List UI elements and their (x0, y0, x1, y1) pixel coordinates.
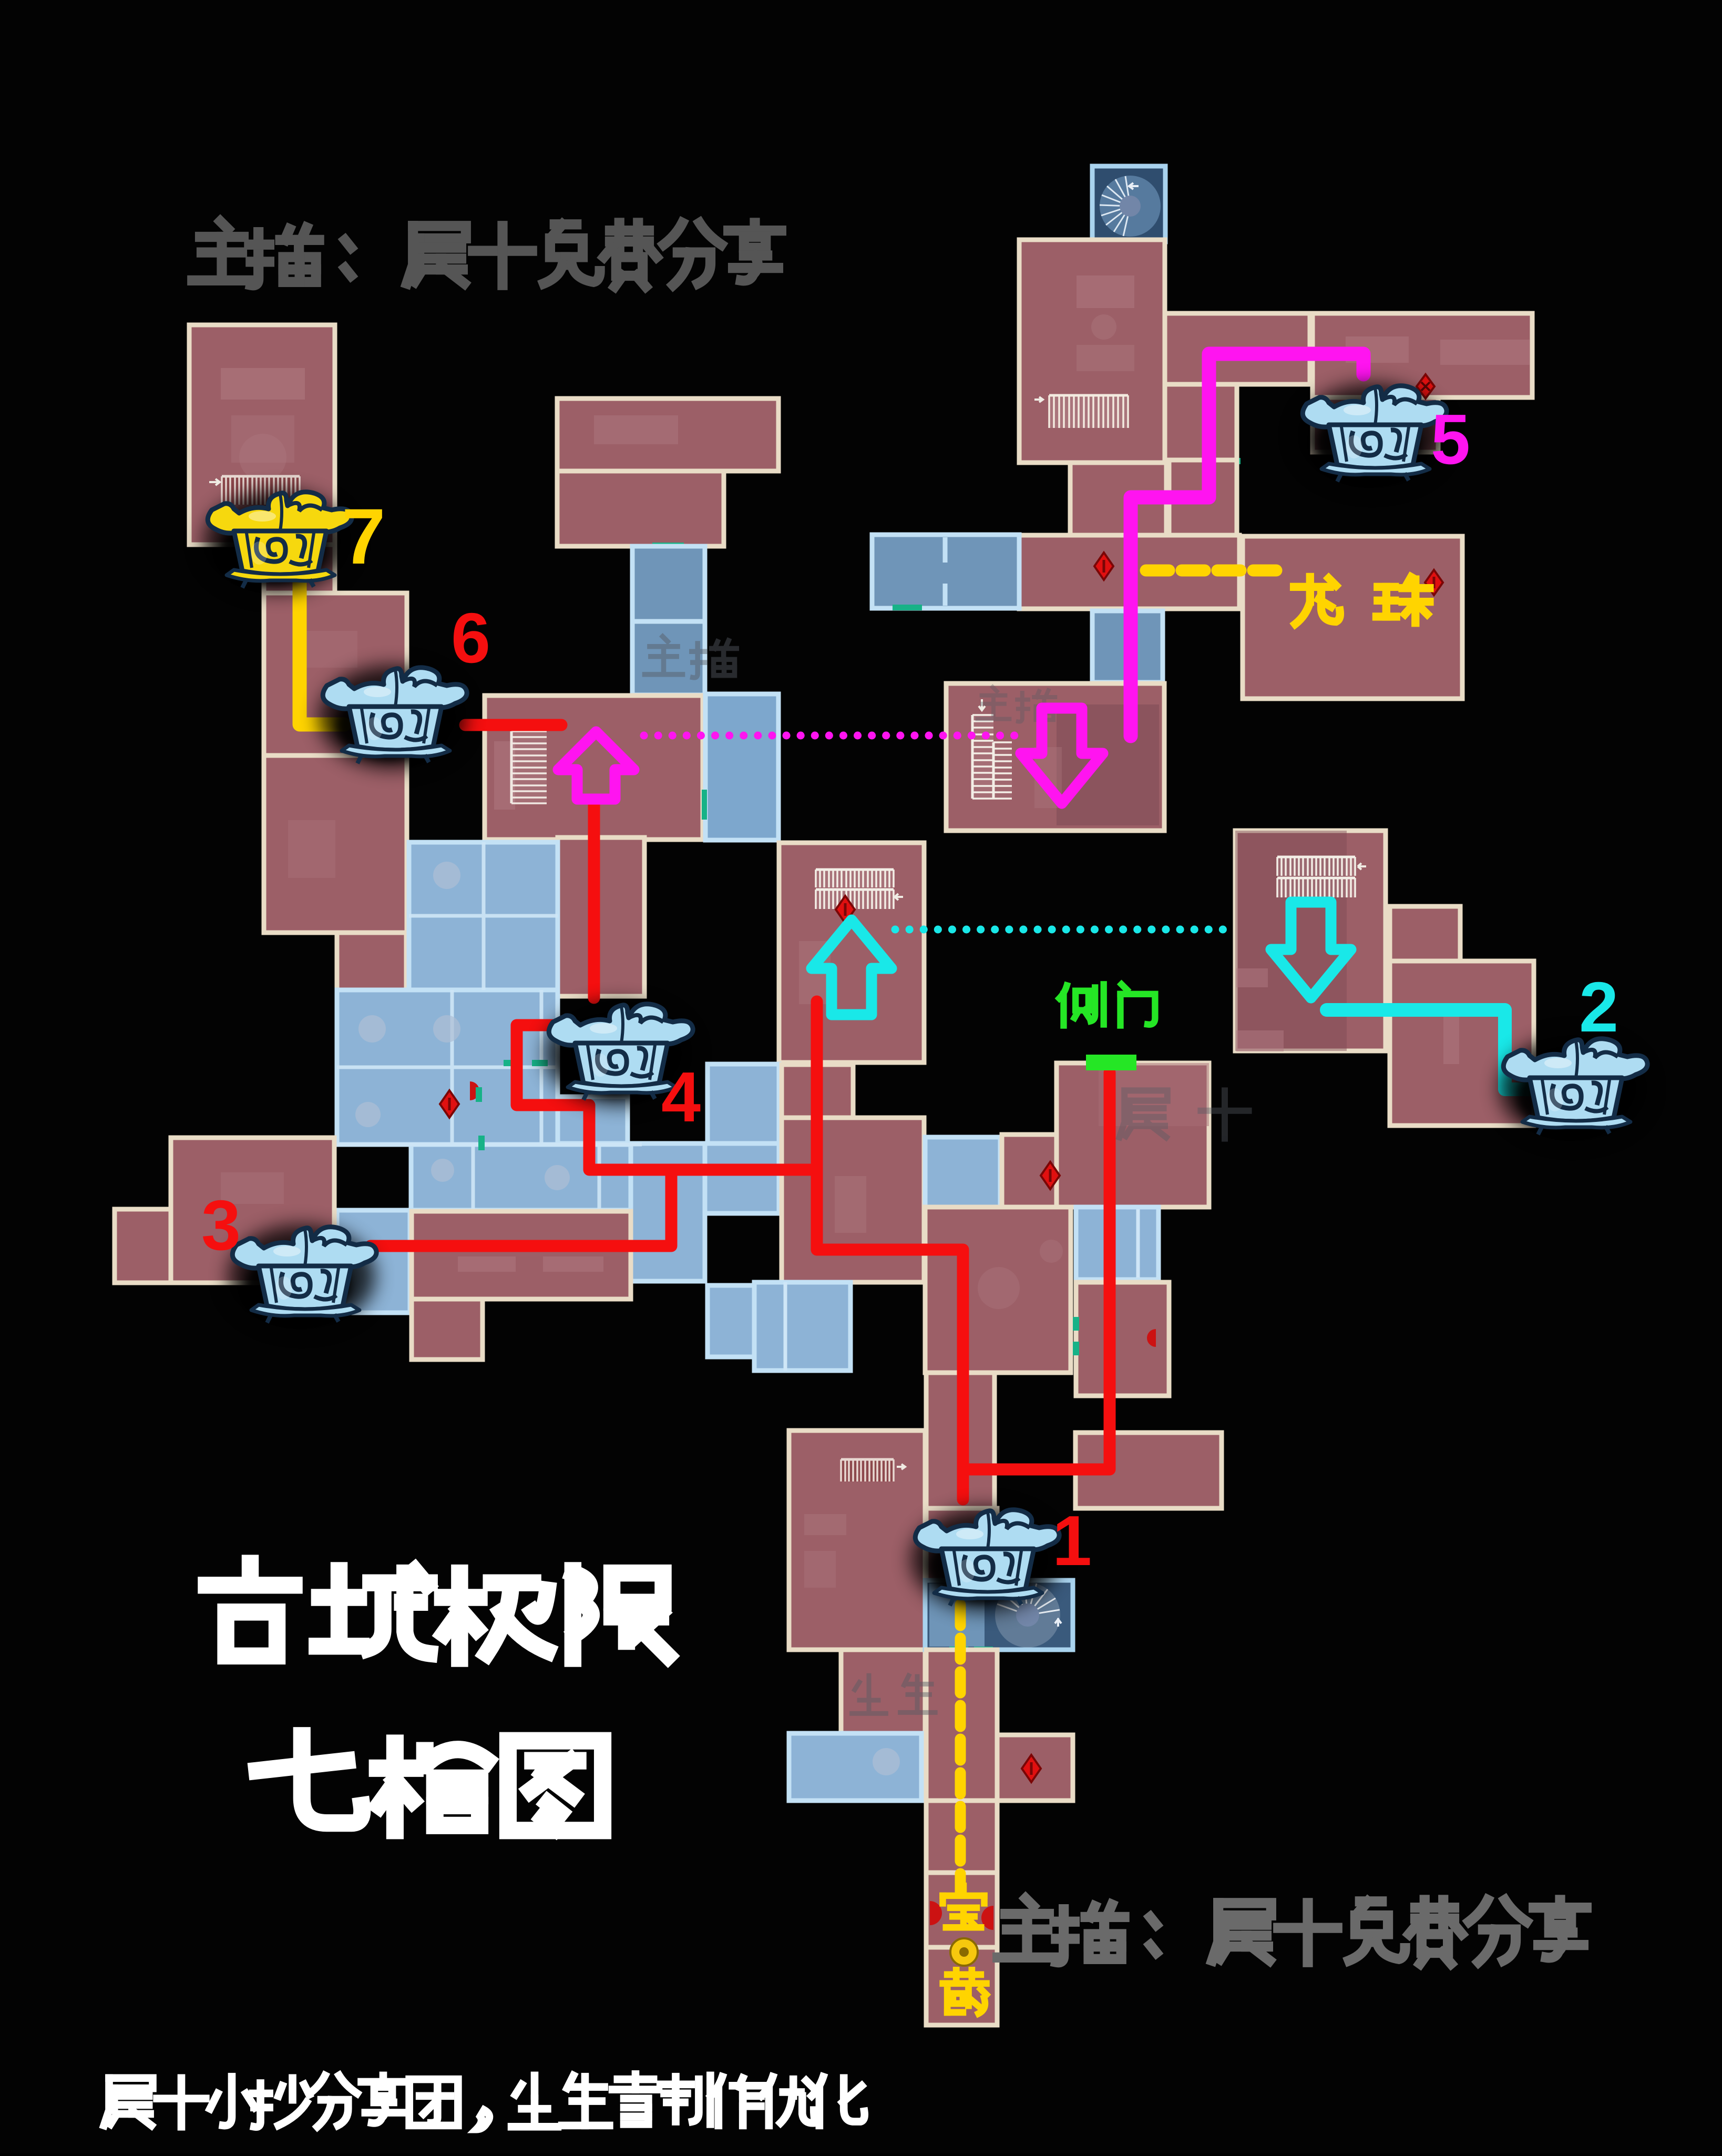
svg-text:6: 6 (451, 598, 490, 678)
svg-text:1: 1 (1052, 1501, 1092, 1580)
svg-text:5: 5 (1431, 400, 1470, 479)
svg-text:2: 2 (1579, 967, 1618, 1047)
svg-text:7: 7 (342, 492, 385, 580)
svg-text:3: 3 (201, 1186, 241, 1265)
svg-text:4: 4 (661, 1057, 701, 1137)
